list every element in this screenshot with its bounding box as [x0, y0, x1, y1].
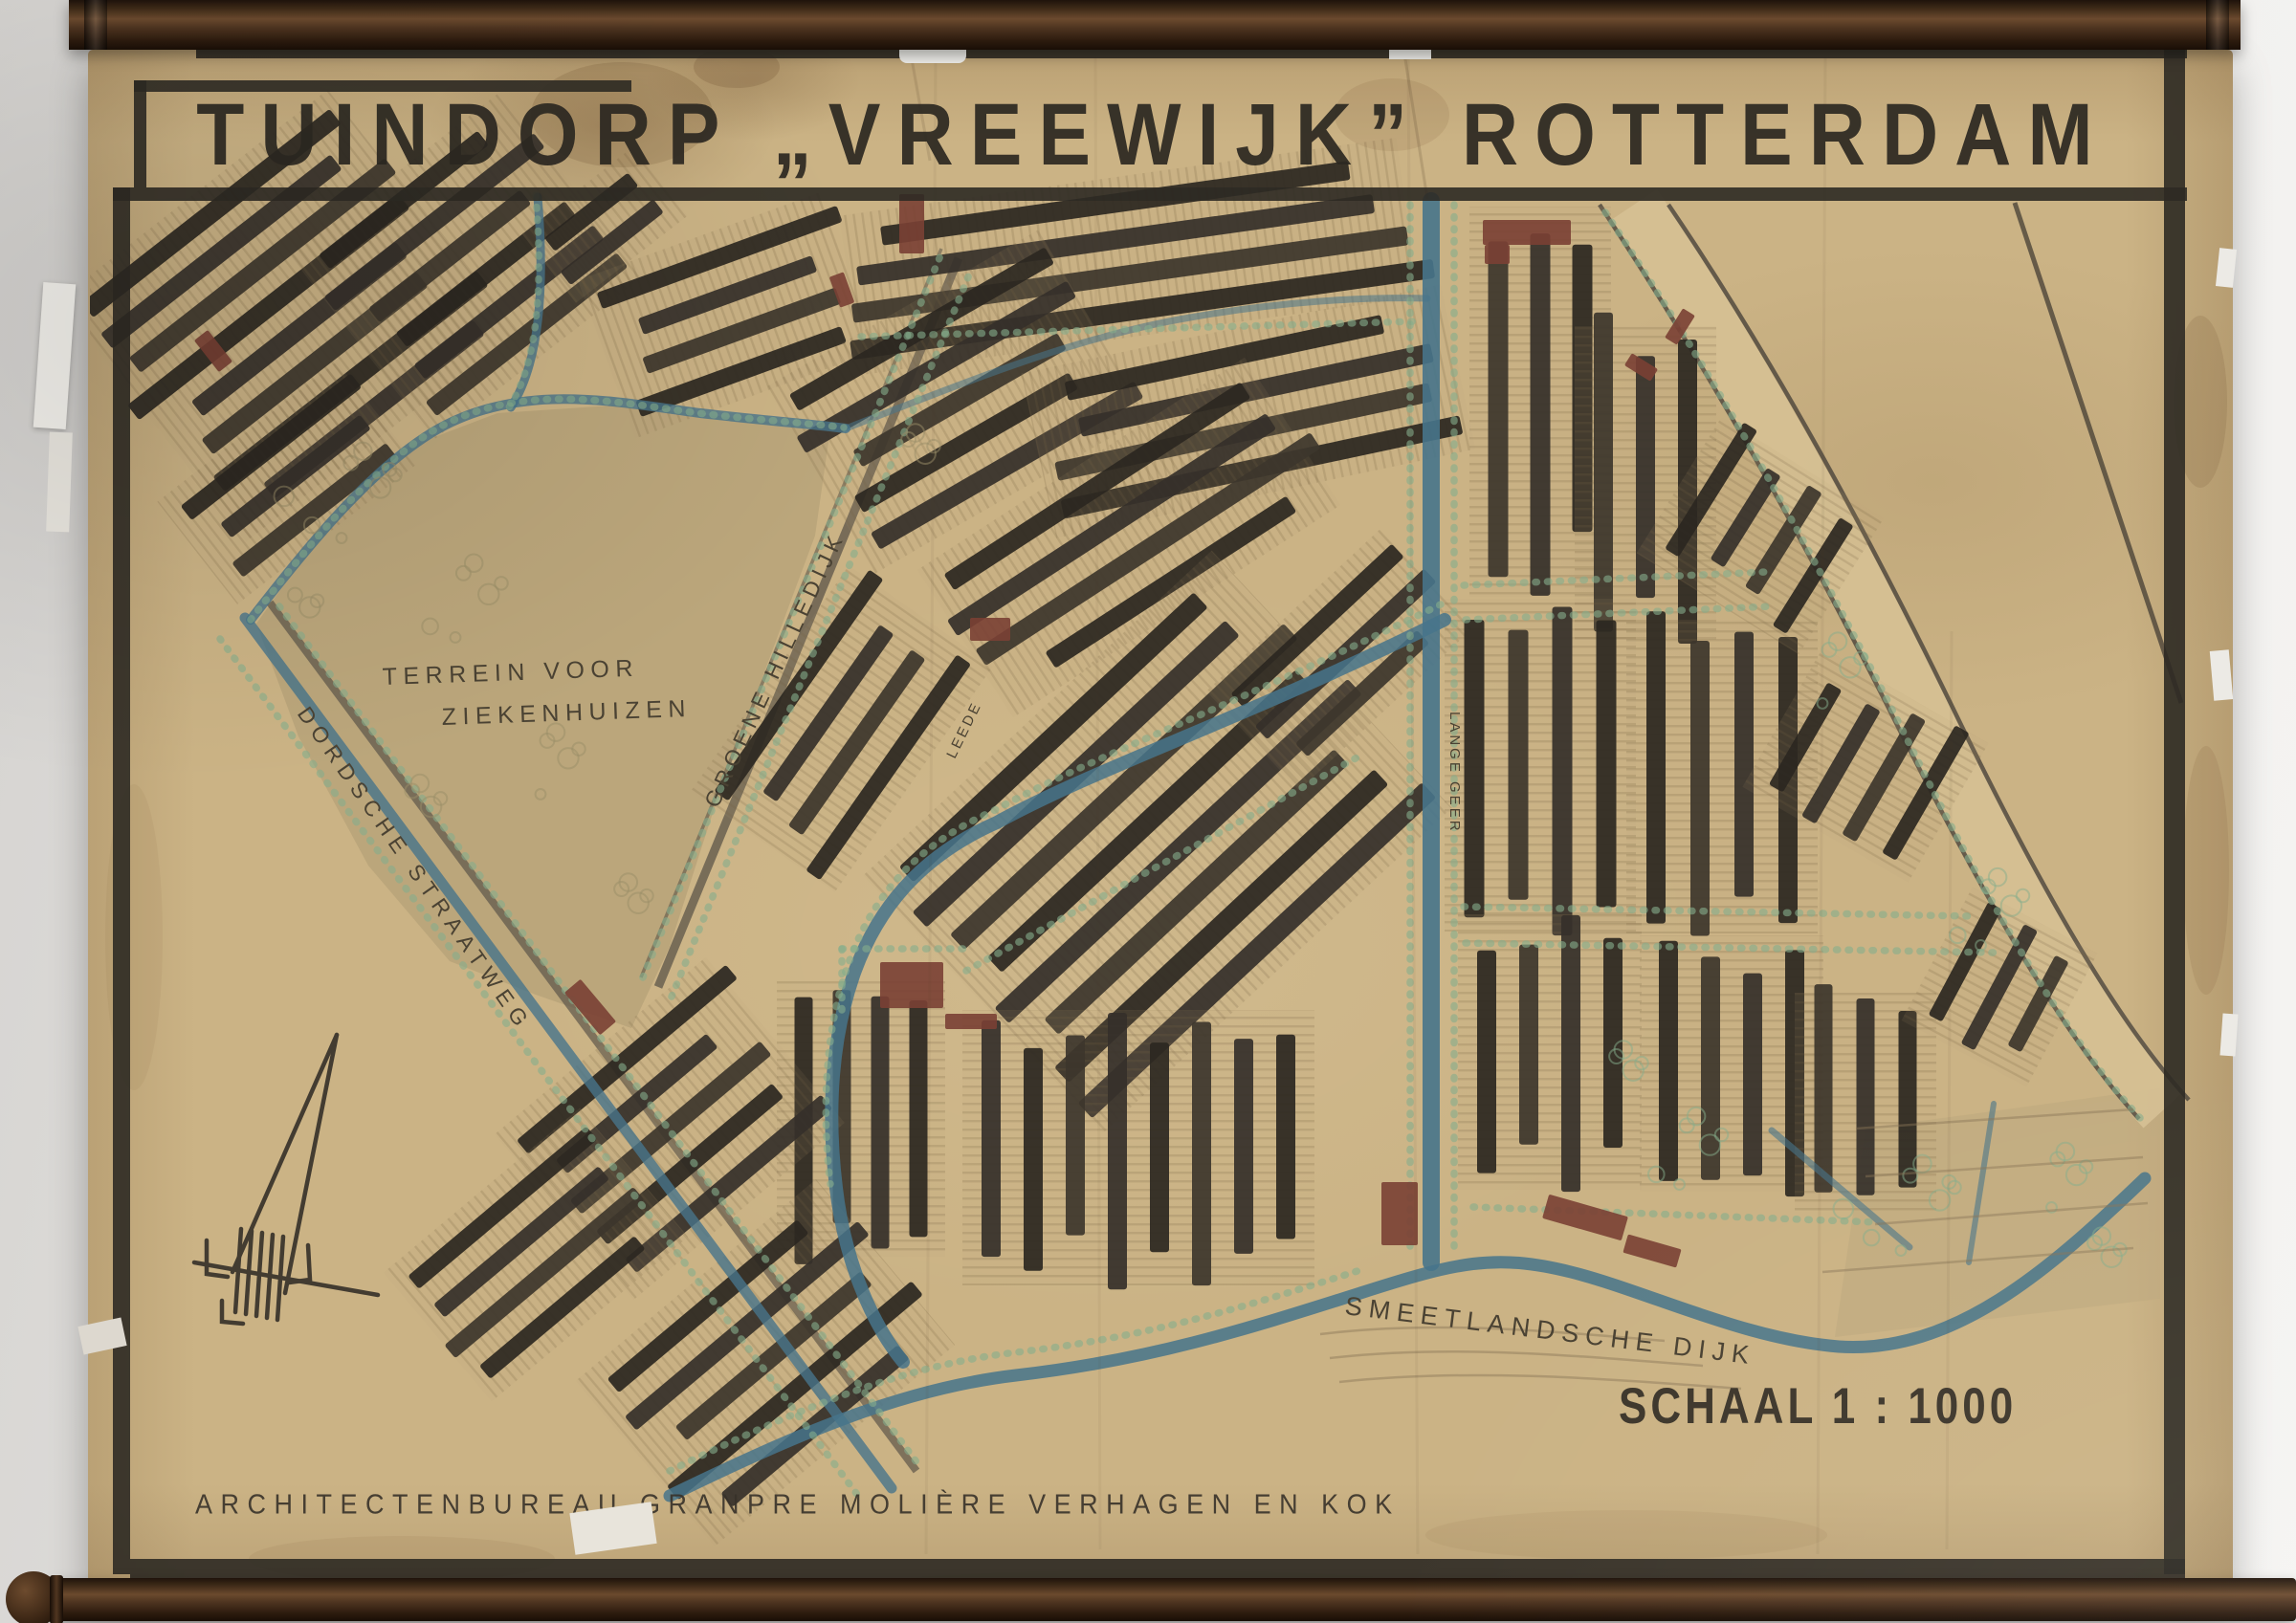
dyke-label-smeetlandsche-dijk: SMEETLANDSCHE DIJK [1343, 1291, 1756, 1370]
scale-label: SCHAAL 1 : 1000 [1619, 1378, 2017, 1436]
bottom-hanging-rod [54, 1578, 2296, 1621]
top-hanging-rod [69, 0, 2241, 50]
canal-label-lange-geer: LANGE GEER [1446, 712, 1463, 834]
rod-end-cap [2206, 0, 2229, 50]
poster-title: TUINDORP „VREEWIJK” ROTTERDAM [134, 78, 2172, 194]
rod-knob-ring [50, 1575, 63, 1623]
paper-tear [899, 50, 966, 63]
rod-end-cap [84, 0, 107, 50]
paper-tag [46, 432, 73, 533]
north-arrow-icon [194, 1035, 378, 1324]
paper-tear [2219, 1013, 2238, 1056]
paper-tear [1389, 50, 1431, 59]
photo-background: TERREIN VOOR ZIEKENHUIZEN DORDSCHE STRAA… [0, 0, 2296, 1623]
credit-line: ARCHITECTENBUREAU GRANPRE MOLIÈRE VERHAG… [195, 1489, 1401, 1521]
